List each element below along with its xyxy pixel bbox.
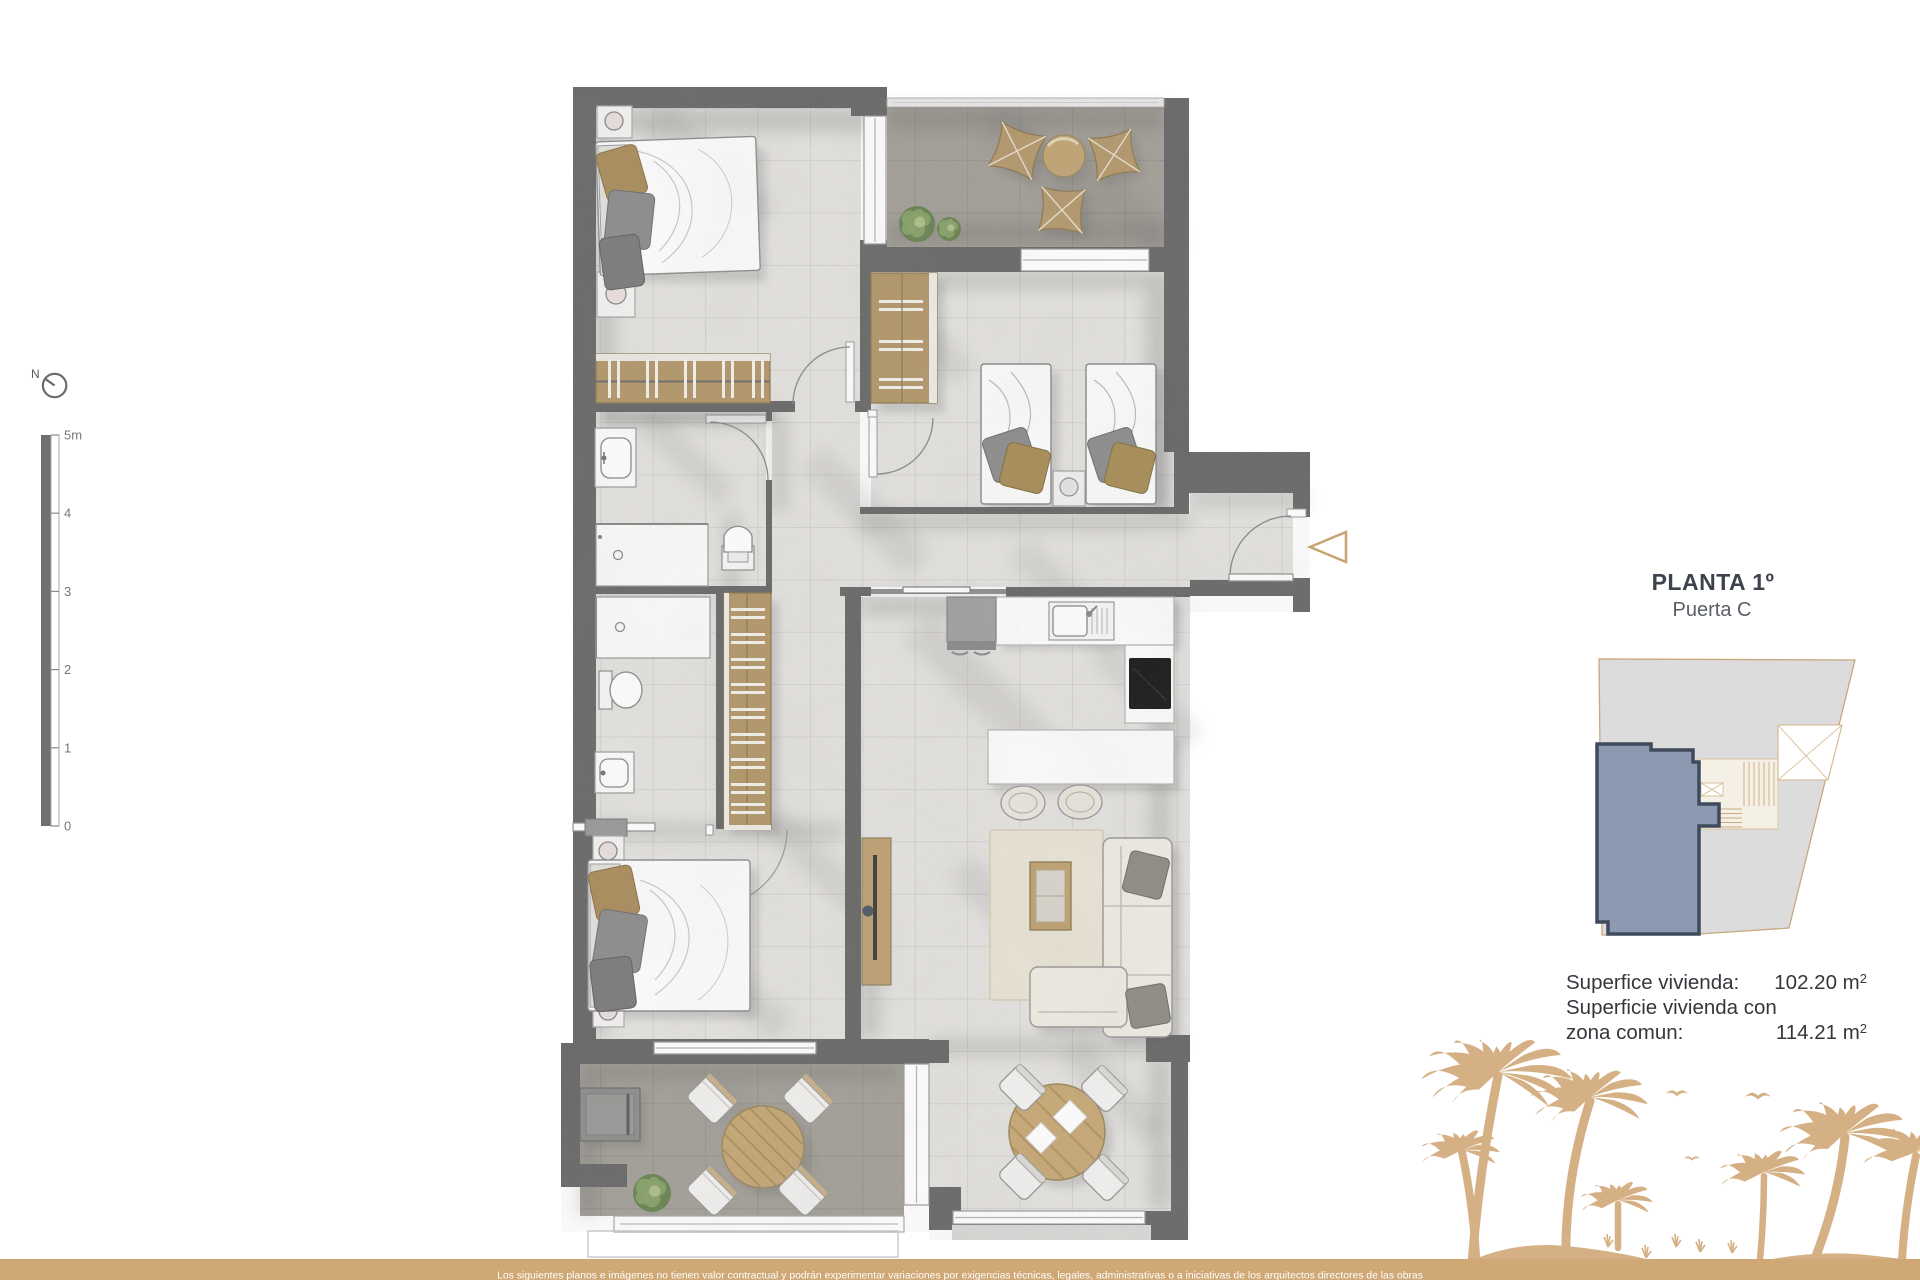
svg-text:Superficie vivienda con: Superficie vivienda con (1566, 996, 1777, 1019)
svg-text:4: 4 (64, 506, 71, 521)
svg-text:Los siguientes planos e imágen: Los siguientes planos e imágenes no tien… (497, 1271, 1423, 1280)
svg-text:PLANTA 1º: PLANTA 1º (1652, 569, 1775, 595)
svg-text:114.21 m2: 114.21 m2 (1776, 1021, 1867, 1044)
svg-text:2: 2 (64, 662, 71, 677)
svg-text:zona comun:: zona comun: (1566, 1021, 1683, 1044)
svg-text:0: 0 (64, 819, 71, 834)
svg-text:3: 3 (64, 584, 71, 599)
svg-text:1: 1 (64, 740, 71, 755)
svg-text:Puerta C: Puerta C (1673, 599, 1752, 621)
svg-text:N: N (31, 367, 40, 381)
svg-text:102.20 m2: 102.20 m2 (1774, 971, 1867, 994)
svg-text:Superfice vivienda:: Superfice vivienda: (1566, 971, 1739, 994)
svg-text:5m: 5m (64, 428, 82, 443)
